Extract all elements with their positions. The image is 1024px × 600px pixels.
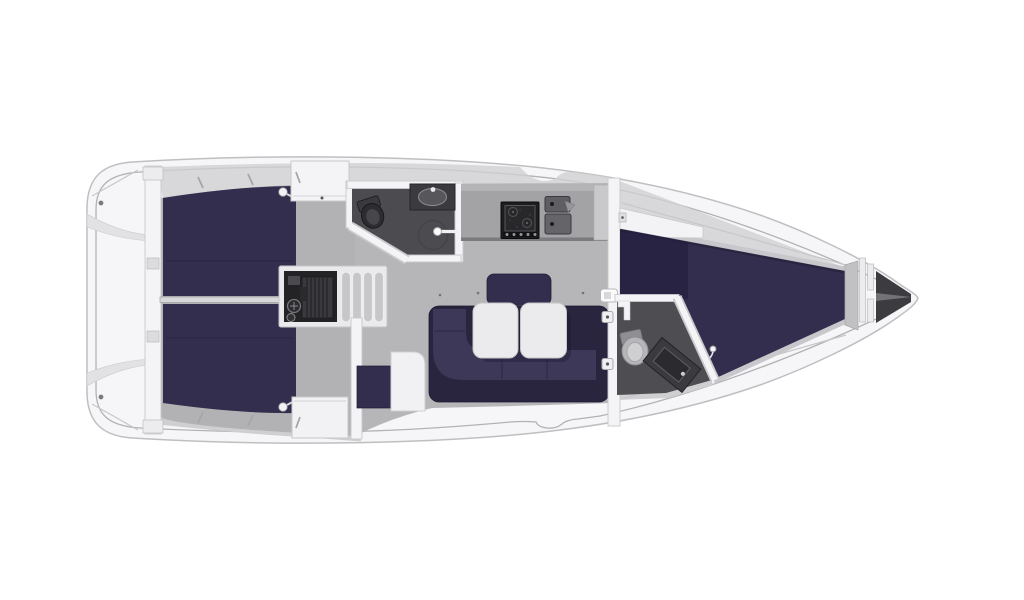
forward-head-top-wall: [615, 295, 679, 302]
stern-bulkhead-wall: [145, 166, 161, 434]
counter-highlight: [461, 184, 609, 191]
step-tread: [375, 272, 384, 322]
table-leaf: [521, 303, 567, 358]
yacht-floor-plan: [0, 0, 1024, 600]
settee-backrest: [487, 274, 551, 305]
shelf-hinge: [619, 213, 626, 222]
shower-head: [434, 228, 442, 236]
berth-center-divider: [160, 297, 282, 303]
aft-berth-bottom: [163, 304, 296, 413]
wardrobe-knob: [321, 197, 324, 200]
berth-footboard: [845, 261, 858, 330]
faucet: [431, 187, 436, 192]
nav-bench-cushion: [357, 366, 392, 408]
yacht-floor-plan-canvas: [0, 0, 1024, 600]
door-hinge: [602, 359, 613, 370]
deck-fitting-dot: [99, 395, 104, 400]
sink-drain: [550, 202, 554, 206]
step-tread: [353, 272, 362, 322]
washbasin: [410, 184, 455, 210]
deck-fitting-dot: [99, 201, 104, 206]
stove: [501, 202, 539, 239]
bulkhead-post-top: [143, 167, 163, 180]
bulkhead-hinge: [147, 258, 159, 269]
door-hinge: [602, 312, 613, 323]
engine-companionway: [279, 266, 387, 327]
table-leaf: [473, 303, 518, 358]
aft-head-bottom-wall: [403, 255, 461, 262]
galley: [461, 184, 609, 241]
bow-divider-wall: [868, 299, 874, 322]
double-sink: [545, 197, 575, 235]
galley-end-cabinet: [594, 185, 609, 240]
sink-drain: [550, 222, 554, 226]
aft-cabin-starboard: [163, 304, 296, 413]
bow-divider-wall: [860, 258, 866, 322]
step-tread: [364, 272, 373, 322]
bow-divider-wall: [868, 264, 874, 290]
nav-seat-unit: [391, 352, 425, 411]
bulkhead-hinge: [147, 331, 159, 342]
step-tread: [342, 272, 351, 322]
aft-berth-top: [163, 186, 296, 296]
aft-cabin-port: [163, 186, 296, 296]
bulkhead-post-bottom: [143, 420, 163, 433]
bow-fitting: [912, 296, 915, 299]
